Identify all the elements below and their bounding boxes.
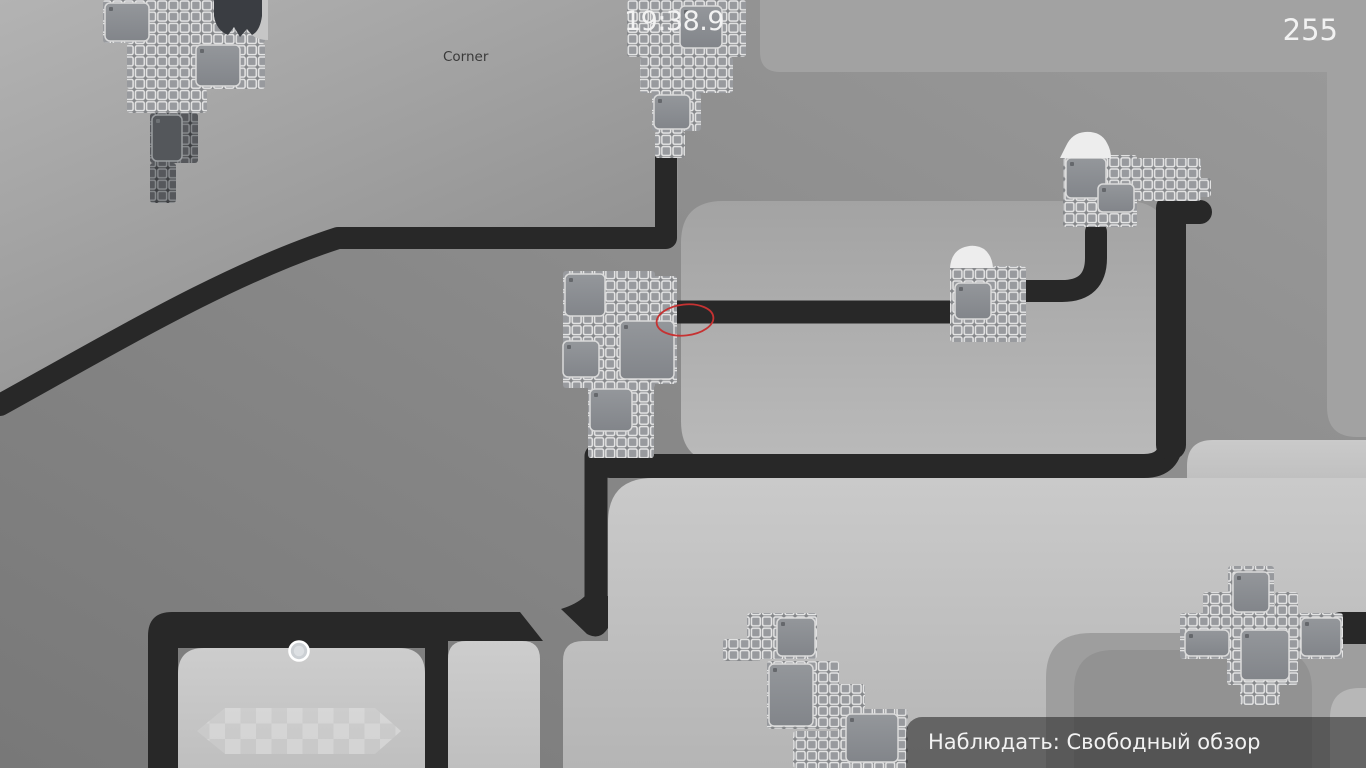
panel-corner-dot (1189, 634, 1193, 638)
score-value: 255 (1283, 13, 1338, 47)
panel-corner-dot (781, 622, 785, 626)
tile-block (1192, 178, 1211, 197)
room-small (448, 641, 540, 768)
game-viewport[interactable]: 19:38.9 255 Corner Наблюдать: Свободный … (0, 0, 1366, 768)
game-scene (0, 0, 1366, 768)
tile-panel (620, 321, 674, 379)
panel-corner-dot (1305, 622, 1309, 626)
tile-panel (1185, 630, 1229, 656)
spectate-bar[interactable]: Наблюдать: Свободный обзор (906, 717, 1366, 768)
panel-corner-dot (850, 718, 854, 722)
tile-block (837, 684, 865, 710)
panel-corner-dot (109, 7, 113, 11)
structure-snow-block (950, 266, 1026, 342)
panel-corner-dot (624, 325, 628, 329)
panel-corner-dot (1245, 634, 1249, 638)
right-column (1327, 70, 1366, 437)
tile-block (150, 163, 176, 203)
top-band (760, 0, 1366, 72)
tile-block (1275, 592, 1298, 616)
panel-corner-dot (959, 287, 963, 291)
tile-block (127, 89, 207, 113)
panel-corner-dot (1237, 576, 1241, 580)
panel-corner-dot (1070, 162, 1074, 166)
tile-block (1240, 683, 1280, 705)
tile-block (1137, 158, 1201, 201)
tile-block (640, 57, 733, 93)
tile-block (793, 731, 841, 768)
panel-corner-dot (594, 393, 598, 397)
spectate-label: Наблюдать: Свободный обзор (906, 717, 1366, 767)
panel-corner-dot (658, 99, 662, 103)
panel-corner-dot (569, 278, 573, 282)
panel-corner-dot (773, 668, 777, 672)
panel-corner-dot (1102, 188, 1106, 192)
map-label: Corner (443, 49, 488, 65)
tile-block (723, 639, 761, 661)
panel-corner-dot (567, 345, 571, 349)
race-timer: 19:38.9 (624, 6, 724, 37)
pickup-orb-core (294, 646, 304, 656)
finish-checker-pattern (197, 708, 401, 754)
tile-panel (769, 664, 813, 726)
panel-corner-dot (200, 49, 204, 53)
tile-block (655, 131, 685, 158)
panel-corner-dot (156, 119, 160, 123)
